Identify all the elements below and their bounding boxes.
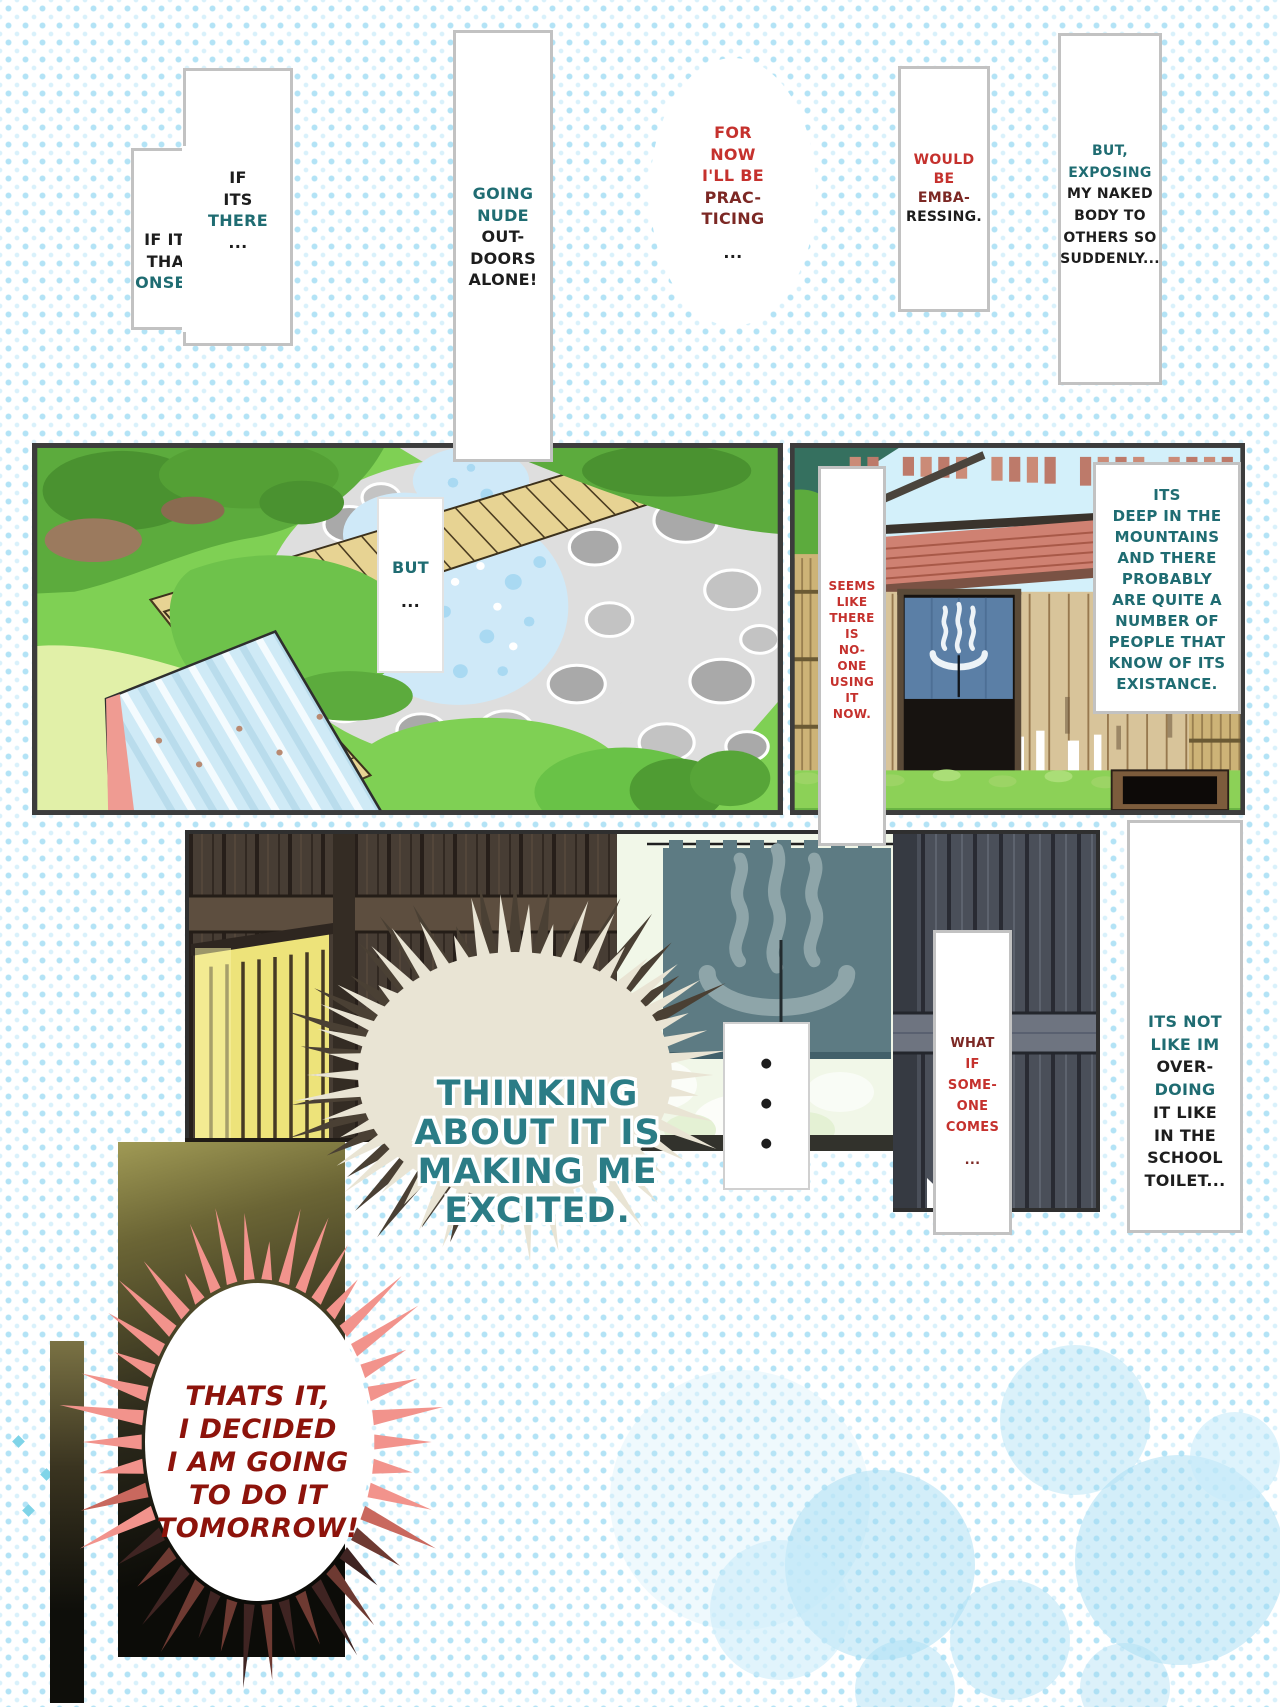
- speech-bubble-deep-in-mountains: ITSDEEP IN THEMOUNTAINSAND THEREPROBABLY…: [1093, 462, 1241, 714]
- bubble-line: TOMORROW!: [126, 1512, 390, 1545]
- bubble-line: DEEP IN THE: [1113, 506, 1222, 527]
- bubble-line: WHAT: [950, 1033, 994, 1054]
- bubble-line: MOUNTAINS: [1115, 527, 1220, 548]
- bubble-line: PEOPLE THAT: [1109, 632, 1226, 653]
- bokeh-circle: [1190, 1412, 1280, 1502]
- sparkle-icon: [22, 1504, 35, 1517]
- bubble-line: LIKE: [837, 595, 868, 611]
- bubble-line: THERE: [208, 210, 268, 232]
- bubble-line: EXISTANCE.: [1116, 674, 1217, 695]
- bubble-line: IS: [845, 627, 859, 643]
- bubble-line: BUT: [392, 557, 429, 579]
- bubble-line: MAKING ME: [365, 1153, 710, 1192]
- bubble-line: EMBA-: [918, 189, 970, 208]
- bubble-line: BE: [934, 170, 955, 189]
- bubble-line: SCHOOL: [1147, 1147, 1223, 1170]
- bubble-line: I DECIDED: [126, 1413, 390, 1446]
- bubble-line: IT: [845, 691, 858, 707]
- bubble-line: NUDE: [477, 205, 529, 227]
- bubble-line: ALONE!: [468, 269, 537, 291]
- bokeh-circle: [710, 1540, 850, 1680]
- bubble-line: EXCITED.: [365, 1192, 710, 1231]
- bubble-line: I'LL BE: [702, 165, 764, 187]
- manga-page: IFITSTHERE... IF ITSTHATONSEN. GOINGNUDE…: [0, 0, 1280, 1707]
- sparkle-icon: [12, 1435, 25, 1448]
- bubble-line: IF: [965, 1054, 979, 1075]
- bubble-line: COMES: [946, 1117, 999, 1138]
- bubble-line: BUT,: [1092, 141, 1128, 163]
- speech-bubble-silence-dots: ●●●: [723, 1022, 810, 1190]
- bubble-line: RESSING.: [906, 208, 982, 227]
- bubble-line: ...: [965, 1150, 981, 1171]
- bubble-line: SUDDENLY...: [1060, 249, 1160, 271]
- bubble-line: NOW.: [833, 707, 871, 723]
- caption-thats-it-tomorrow: THATS IT,I DECIDEDI AM GOINGTO DO ITTOMO…: [126, 1380, 390, 1545]
- bubble-line: ●: [761, 1084, 773, 1124]
- bubble-line: ARE QUITE A: [1112, 590, 1222, 611]
- bubble-line: ...: [723, 242, 742, 264]
- bubble-line: ●: [761, 1124, 773, 1164]
- speech-bubble-but-exposing: BUT,EXPOSINGMY NAKEDBODY TOOTHERS SOSUDD…: [1058, 33, 1162, 385]
- bubble-line: SOME-: [948, 1075, 997, 1096]
- bubble-line: THINKING: [365, 1075, 710, 1114]
- bubble-line: DOORS: [470, 248, 536, 270]
- bubble-line: THATS IT,: [126, 1380, 390, 1413]
- speech-bubble-going-nude: GOINGNUDEOUT-DOORSALONE!: [453, 30, 553, 462]
- bubble-line: TICING: [702, 208, 765, 230]
- bubble-line: NO-: [839, 643, 865, 659]
- speech-bubble-but: BUT...: [377, 497, 444, 673]
- bubble-line: PROBABLY: [1122, 569, 1212, 590]
- bubble-line: KNOW OF ITS: [1109, 653, 1226, 674]
- bubble-line: DOING: [1155, 1079, 1216, 1102]
- bubble-line: WOULD: [914, 151, 975, 170]
- speech-bubble-what-if-someone-comes: WHATIFSOME-ONECOMES...: [933, 930, 1012, 1235]
- bubble-line: ...: [401, 591, 420, 613]
- bubble-line: TO DO IT: [126, 1479, 390, 1512]
- bubble-line: MY NAKED: [1067, 184, 1153, 206]
- bubble-line: ITS NOT: [1148, 1011, 1222, 1034]
- speech-bubble-seems-like-no-one: SEEMSLIKETHEREISNO-ONEUSINGITNOW.: [818, 466, 886, 846]
- bubble-line: GOING: [473, 183, 534, 205]
- bubble-line: ONE: [837, 659, 866, 675]
- bubble-line: OUT-: [482, 226, 525, 248]
- bubble-line: AND THERE: [1117, 548, 1216, 569]
- speech-bubble-not-overdoing-it: ITS NOTLIKE IMOVER-DOINGIT LIKEIN THESCH…: [1127, 820, 1243, 1233]
- speech-bubble-would-be-embarrassing: WOULDBEEMBA-RESSING.: [898, 66, 990, 312]
- bubble-line: ABOUT IT IS: [365, 1114, 710, 1153]
- bubble-line: I AM GOING: [126, 1446, 390, 1479]
- caption-thinking-excited: THINKINGABOUT IT ISMAKING MEEXCITED.: [365, 1075, 710, 1231]
- bubble-line: ITS: [223, 189, 252, 211]
- bubble-line: IT LIKE: [1153, 1102, 1217, 1125]
- bubble-line: ...: [228, 232, 247, 254]
- bubble-line: USING: [830, 675, 874, 691]
- bubble-line: IN THE: [1154, 1125, 1216, 1148]
- bubble-line: IF: [229, 167, 246, 189]
- bubble-line: EXPOSING: [1068, 163, 1151, 185]
- bubble-line: BODY TO: [1074, 206, 1146, 228]
- bubble-joint: [182, 146, 208, 332]
- bokeh-circle: [950, 1580, 1070, 1700]
- bubble-line: LIKE IM: [1150, 1034, 1219, 1057]
- bubble-line: ONE: [957, 1096, 989, 1117]
- bubble-line: TOILET...: [1144, 1170, 1225, 1193]
- bubble-line: ITS: [1153, 485, 1181, 506]
- bubble-line: SEEMS: [828, 579, 875, 595]
- bubble-line: OVER-: [1157, 1056, 1214, 1079]
- bubble-line: NOW: [710, 144, 756, 166]
- thought-bubble-for-now: FORNOWI'LL BEPRAC-TICING...: [650, 58, 816, 326]
- bubble-line: PRAC-: [705, 187, 762, 209]
- bubble-line: FOR: [714, 122, 752, 144]
- bubble-line: ●: [761, 1044, 773, 1084]
- bubble-line: THERE: [829, 611, 874, 627]
- bubble-line: NUMBER OF: [1115, 611, 1219, 632]
- bubble-line: OTHERS SO: [1063, 228, 1156, 250]
